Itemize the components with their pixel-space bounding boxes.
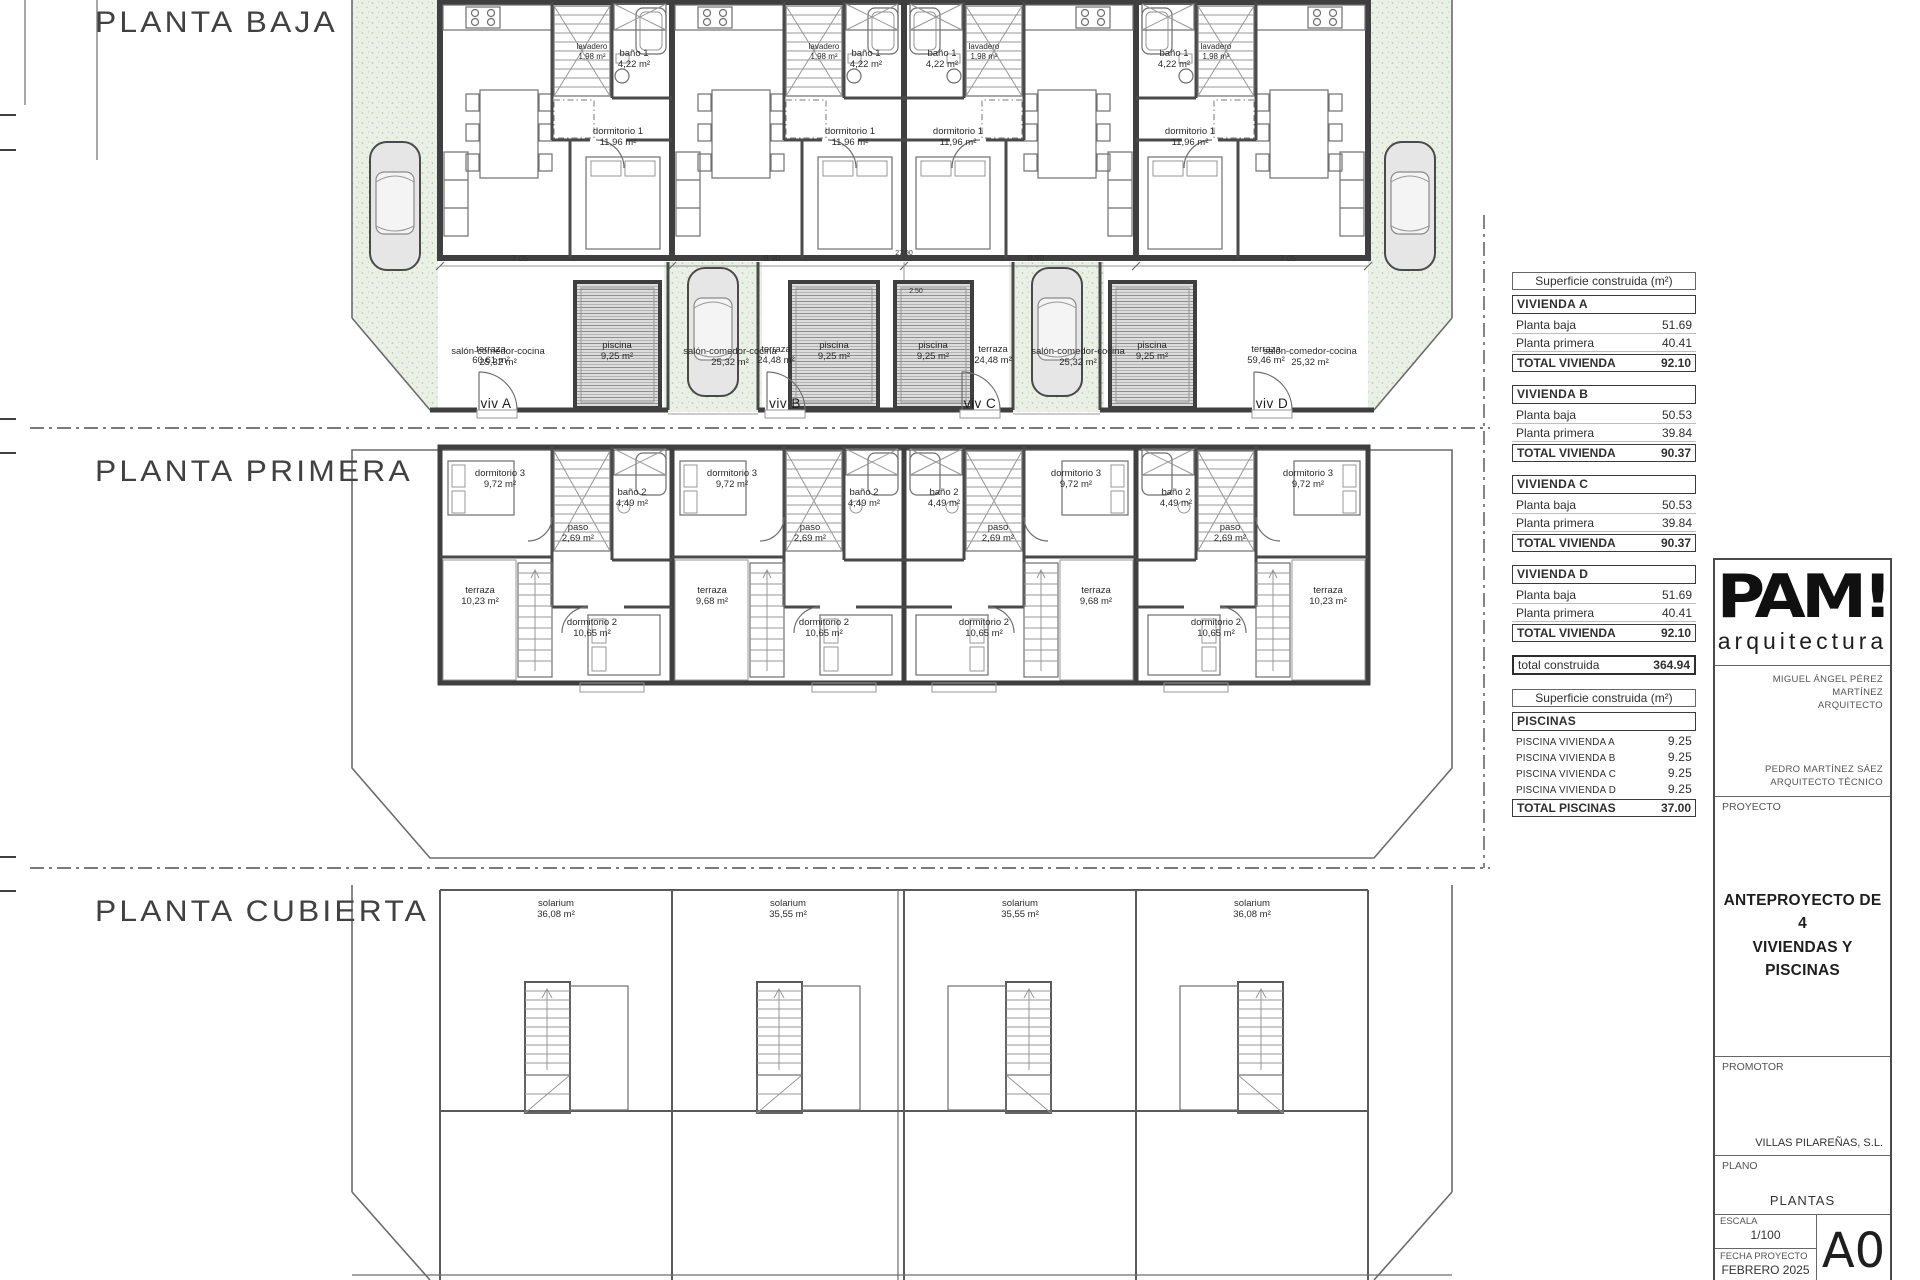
label-baja-d-lavadero: lavadero1,98 m² — [1201, 42, 1232, 61]
table-total-row: TOTAL VIVIENDA92.10 — [1512, 624, 1696, 642]
project-label: PROYECTO — [1722, 801, 1883, 813]
label-p1-b-bano2: baño 24,49 m² — [848, 487, 880, 510]
vivienda-c-section: VIVIENDA C Planta baja50.53 Planta prime… — [1512, 475, 1696, 552]
label-baja-c-lavadero: lavadero1,98 m² — [969, 42, 1000, 61]
vivienda-name: VIVIENDA B — [1512, 385, 1696, 404]
label-baja-a-dorm1: dormitorio 111,96 m² — [593, 126, 643, 149]
architect-name: MIGUEL ÁNGEL PÉREZ MARTÍNEZ ARQUITECTO — [1722, 674, 1883, 712]
architectural-plan-sheet: PLANTA BAJA PLANTA PRIMERA PLANTA CUBIER… — [0, 0, 1920, 1280]
label-p1-d-dorm2: dormitorio 210,65 m² — [1191, 617, 1241, 640]
vivienda-a-section: VIVIENDA A Planta baja51.69 Planta prime… — [1512, 295, 1696, 372]
label-solarium-b: solarium35,55 m² — [769, 898, 807, 921]
plan-title-primera: PLANTA PRIMERA — [95, 455, 413, 489]
scale-cell: ESCALA 1/100 — [1715, 1215, 1816, 1249]
promoter-section: PROMOTOR VILLAS PILAREÑAS, S.L. — [1715, 1057, 1890, 1156]
vivienda-name: VIVIENDA C — [1512, 475, 1696, 494]
plan-title-baja: PLANTA BAJA — [95, 6, 338, 40]
label-p1-d-dorm3: dormitorio 39,72 m² — [1283, 468, 1333, 491]
table-total-row: TOTAL VIVIENDA92.10 — [1512, 354, 1696, 372]
date-cell: FECHA PROYECTO FEBRERO 2025 — [1715, 1249, 1816, 1279]
promoter-name: VILLAS PILAREÑAS, S.L. — [1722, 1137, 1883, 1151]
label-baja-b-dorm1: dormitorio 111,96 m² — [825, 126, 875, 149]
sheet-name: PLANTAS — [1722, 1193, 1883, 1210]
label-baja-a-bano1: baño 14,22 m² — [618, 48, 650, 71]
promoter-label: PROMOTOR — [1722, 1061, 1883, 1073]
label-baja-d-dorm1: dormitorio 111,96 m² — [1165, 126, 1215, 149]
label-baja-c-dorm1: dormitorio 111,96 m² — [933, 126, 983, 149]
label-terraza-d: terraza59,46 m² — [1247, 344, 1285, 367]
title-block: PAM! arquitectura MIGUEL ÁNGEL PÉREZ MAR… — [1713, 558, 1892, 1280]
dim-2-50: 2.50 — [909, 288, 923, 295]
sheet-size: A0 — [1817, 1215, 1890, 1280]
label-p1-a-terraza: terraza10,23 m² — [461, 585, 499, 608]
table-row: PISCINA VIVIENDA B9.25 — [1512, 749, 1696, 765]
sheet-fold-marks — [0, 0, 97, 891]
label-solarium-d: solarium36,08 m² — [1233, 898, 1271, 921]
label-viv-b: viv B — [769, 396, 801, 411]
pools-total-row: TOTAL PISCINAS37.00 — [1512, 799, 1696, 817]
table-row: Planta baja50.53 — [1512, 406, 1696, 424]
date-value: FEBRERO 2025 — [1720, 1263, 1811, 1277]
vivienda-d-section: VIVIENDA D Planta baja51.69 Planta prime… — [1512, 565, 1696, 642]
table-total-row: TOTAL VIVIENDA90.37 — [1512, 534, 1696, 552]
label-p1-a-dorm2: dormitorio 210,65 m² — [567, 617, 617, 640]
table-row: Planta primera40.41 — [1512, 604, 1696, 622]
table-row: Planta baja51.69 — [1512, 316, 1696, 334]
table-row: Planta baja51.69 — [1512, 586, 1696, 604]
label-p1-d-paso: paso2,69 m² — [1214, 522, 1246, 545]
label-baja-b-bano1: baño 14,22 m² — [850, 48, 882, 71]
table-total-row: TOTAL VIVIENDA90.37 — [1512, 444, 1696, 462]
authors-section: MIGUEL ÁNGEL PÉREZ MARTÍNEZ ARQUITECTO P… — [1715, 666, 1890, 797]
plan-title-cubierta: PLANTA CUBIERTA — [95, 895, 429, 929]
dim-8-90-right: 8.90 — [1028, 253, 1045, 263]
planta-primera-drawing — [352, 447, 1452, 858]
label-terraza-b: terraza24,48 m² — [757, 344, 795, 367]
label-baja-c-bano1: baño 14,22 m² — [926, 48, 958, 71]
project-title: ANTEPROYECTO DE 4 VIVIENDAS Y PISCINAS — [1722, 889, 1883, 982]
label-p1-c-terraza: terraza9,68 m² — [1080, 585, 1112, 608]
label-baja-c-salon: salón-comedor-cocina25,32 m² — [1031, 346, 1124, 369]
table-row: PISCINA VIVIENDA C9.25 — [1512, 765, 1696, 781]
label-piscina-a: piscina9,25 m² — [601, 340, 633, 363]
label-p1-b-terraza: terraza9,68 m² — [696, 585, 728, 608]
vivienda-b-section: VIVIENDA B Planta baja50.53 Planta prime… — [1512, 385, 1696, 462]
label-p1-d-bano2: baño 24,49 m² — [1160, 487, 1192, 510]
technical-architect-name: PEDRO MARTÍNEZ SÁEZ ARQUITECTO TÉCNICO — [1722, 764, 1883, 790]
table-row: Planta baja50.53 — [1512, 496, 1696, 514]
label-p1-c-bano2: baño 24,49 m² — [928, 487, 960, 510]
scale-date-section: ESCALA 1/100 FECHA PROYECTO FEBRERO 2025… — [1715, 1215, 1890, 1280]
label-p1-a-bano2: baño 24,49 m² — [616, 487, 648, 510]
vivienda-name: VIVIENDA D — [1512, 565, 1696, 584]
label-p1-c-dorm3: dormitorio 39,72 m² — [1051, 468, 1101, 491]
project-section: PROYECTO ANTEPROYECTO DE 4 VIVIENDAS Y P… — [1715, 797, 1890, 1057]
label-terraza-a: terraza60,61 m² — [472, 344, 510, 367]
table-row: Planta primera39.84 — [1512, 424, 1696, 442]
label-piscina-b: piscina9,25 m² — [818, 340, 850, 363]
table-row: Planta primera39.84 — [1512, 514, 1696, 532]
pools-title: PISCINAS — [1512, 712, 1696, 731]
dim-7-05-right: 7.05 — [1280, 253, 1297, 263]
table-row: PISCINA VIVIENDA A9.25 — [1512, 733, 1696, 749]
label-p1-b-paso: paso2,69 m² — [794, 522, 826, 545]
summary-header: Superficie construida (m²) — [1512, 272, 1696, 290]
label-p1-c-dorm2: dormitorio 210,65 m² — [959, 617, 1009, 640]
firm-logo-subtitle: arquitectura — [1715, 628, 1890, 655]
pools-header: Superficie construida (m²) — [1512, 689, 1696, 707]
scale-value: 1/100 — [1720, 1228, 1811, 1242]
label-solarium-c: solarium35,55 m² — [1001, 898, 1039, 921]
label-p1-a-paso: paso2,69 m² — [562, 522, 594, 545]
label-p1-b-dorm3: dormitorio 39,72 m² — [707, 468, 757, 491]
label-viv-c: viv C — [964, 396, 997, 411]
dim-8-90-left: 8.90 — [764, 253, 781, 263]
area-summary-tables: Superficie construida (m²) VIVIENDA A Pl… — [1512, 272, 1696, 817]
firm-logo: PAM! — [1706, 570, 1899, 625]
firm-logo-section: PAM! arquitectura — [1715, 560, 1890, 666]
vivienda-name: VIVIENDA A — [1512, 295, 1696, 314]
label-piscina-d: piscina9,25 m² — [1136, 340, 1168, 363]
table-row: Planta primera40.41 — [1512, 334, 1696, 352]
label-p1-a-dorm3: dormitorio 39,72 m² — [475, 468, 525, 491]
label-piscina-c: piscina9,25 m² — [917, 340, 949, 363]
label-solarium-a: solarium36,08 m² — [537, 898, 575, 921]
planta-cubierta-drawing — [352, 885, 1452, 1280]
label-viv-a: viv A — [480, 396, 511, 411]
dim-27-90: 27.90 — [895, 250, 913, 257]
label-viv-d: viv D — [1256, 396, 1289, 411]
label-baja-d-bano1: baño 14,22 m² — [1158, 48, 1190, 71]
dim-7-05-left: 7.05 — [512, 253, 529, 263]
sheet-name-label: PLANO — [1722, 1160, 1883, 1172]
total-construida-row: total construida364.94 — [1512, 655, 1696, 675]
label-baja-b-lavadero: lavadero1,98 m² — [809, 42, 840, 61]
sheet-name-section: PLANO PLANTAS — [1715, 1156, 1890, 1215]
label-terraza-c: terraza24,48 m² — [974, 344, 1012, 367]
table-row: PISCINA VIVIENDA D9.25 — [1512, 781, 1696, 797]
label-p1-b-dorm2: dormitorio 210,65 m² — [799, 617, 849, 640]
label-baja-a-lavadero: lavadero1,98 m² — [577, 42, 608, 61]
label-p1-d-terraza: terraza10,23 m² — [1309, 585, 1347, 608]
label-p1-c-paso: paso2,69 m² — [982, 522, 1014, 545]
floorplan-linework — [0, 0, 1500, 1280]
